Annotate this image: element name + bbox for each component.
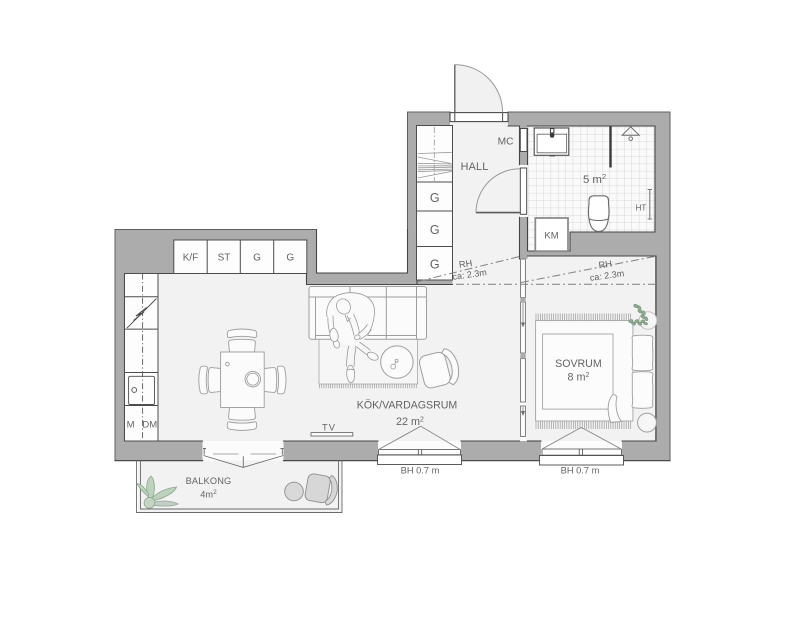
svg-text:MC: MC (498, 137, 514, 148)
svg-text:KM: KM (544, 231, 558, 242)
svg-text:HT: HT (636, 204, 647, 213)
svg-text:G: G (286, 252, 294, 263)
svg-text:BH 0.7 m: BH 0.7 m (401, 466, 440, 476)
svg-text:G: G (253, 252, 261, 263)
svg-text:M: M (127, 420, 135, 431)
svg-text:RH: RH (458, 258, 473, 270)
svg-text:BH 0.7 m: BH 0.7 m (561, 466, 600, 476)
svg-text:TV: TV (322, 423, 336, 433)
svg-text:K/F: K/F (183, 252, 199, 263)
svg-text:SOVRUM: SOVRUM (555, 358, 602, 370)
svg-text:G: G (430, 257, 440, 271)
svg-text:HALL: HALL (461, 161, 489, 173)
svg-text:22 m2: 22 m2 (396, 416, 424, 428)
svg-text:KÖK/VARDAGSRUM: KÖK/VARDAGSRUM (357, 400, 457, 412)
svg-text:RH: RH (598, 259, 613, 271)
svg-text:ST: ST (218, 252, 231, 263)
svg-text:G: G (430, 191, 440, 205)
svg-text:BALKONG: BALKONG (186, 476, 232, 486)
svg-text:G: G (430, 223, 440, 237)
svg-text:DM: DM (142, 420, 157, 431)
